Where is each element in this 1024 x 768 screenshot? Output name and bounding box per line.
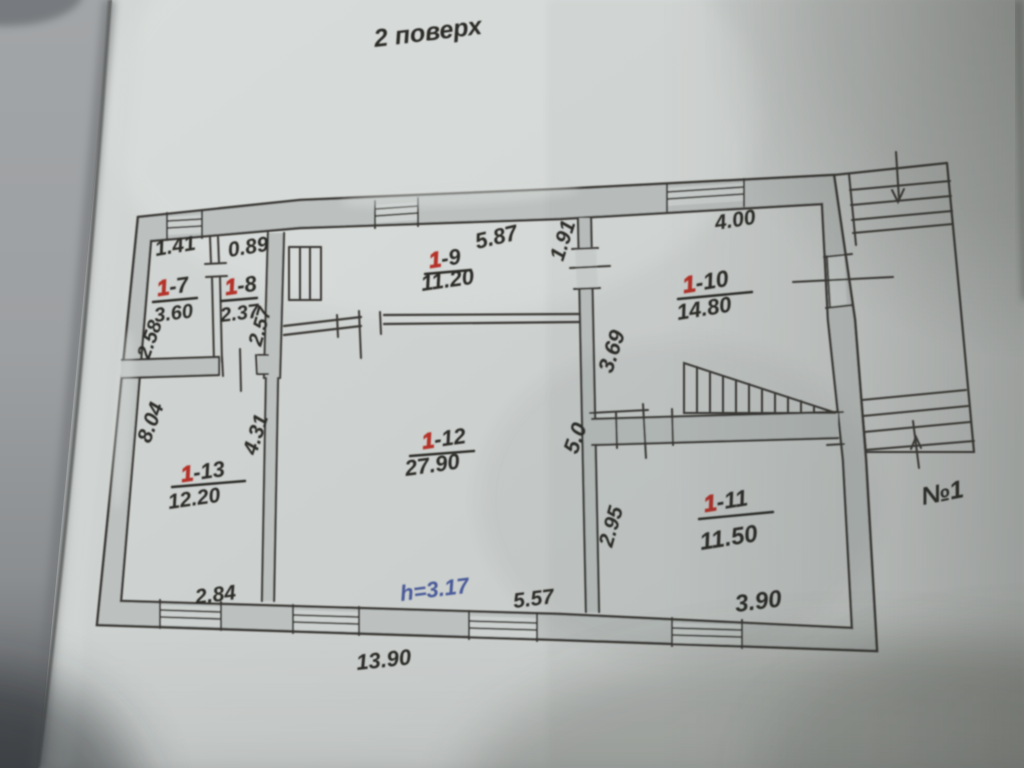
- svg-text:1-7: 1-7: [155, 272, 192, 301]
- svg-text:1-8: 1-8: [223, 271, 259, 300]
- svg-text:3.60: 3.60: [153, 300, 194, 327]
